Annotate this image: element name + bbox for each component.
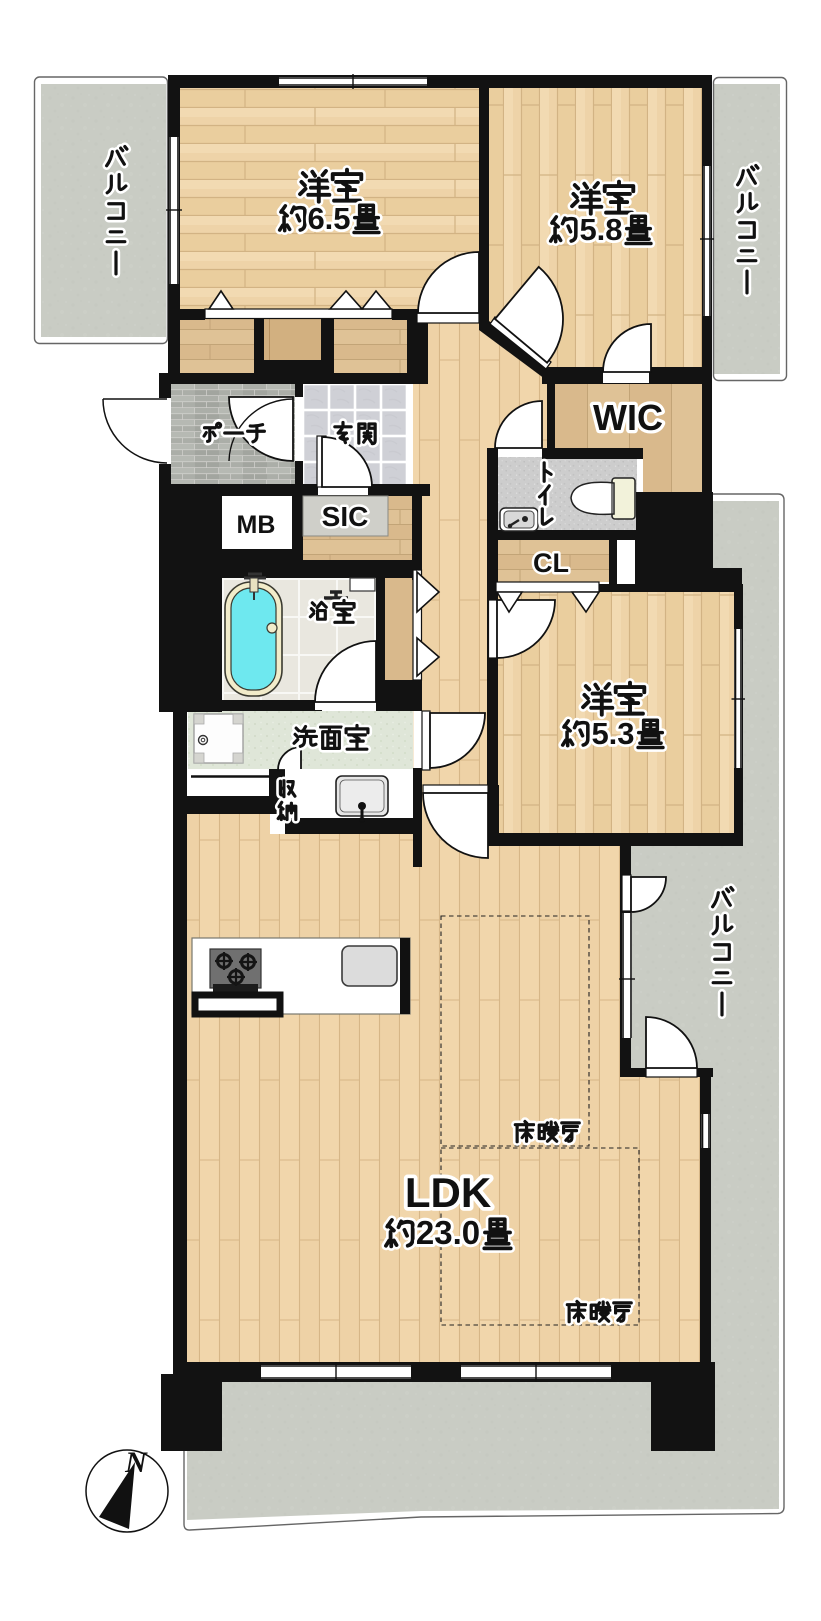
svg-text:SIC: SIC: [322, 501, 369, 532]
svg-text:LDK: LDK: [405, 1169, 491, 1216]
svg-text:5.3: 5.3: [591, 716, 634, 751]
svg-text:CL: CL: [533, 548, 569, 578]
svg-text:N: N: [124, 1446, 148, 1479]
svg-text:MB: MB: [237, 511, 276, 539]
svg-text:23.0: 23.0: [416, 1214, 480, 1251]
svg-text:6.5: 6.5: [307, 201, 350, 236]
svg-text:WIC: WIC: [593, 397, 663, 438]
svg-text:5.8: 5.8: [579, 212, 622, 247]
